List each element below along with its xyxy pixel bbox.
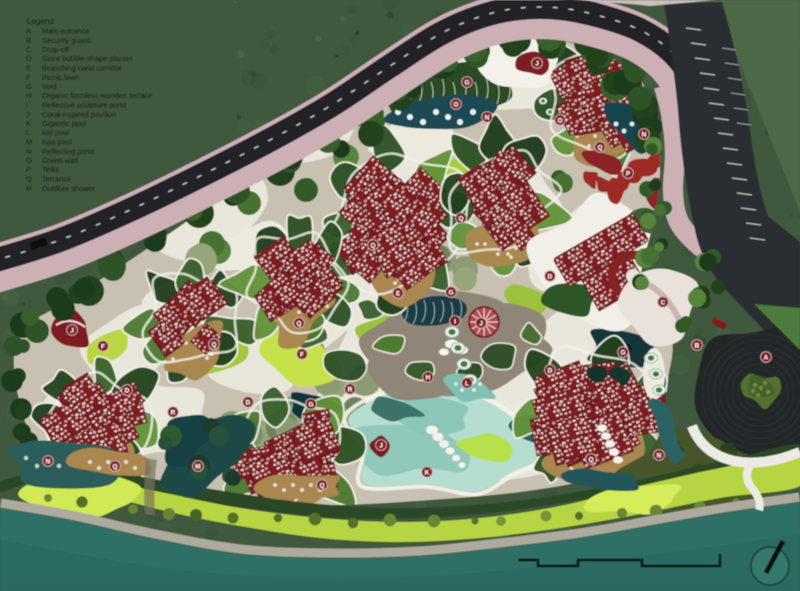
svg-text:N: N (485, 114, 490, 121)
svg-text:G: G (26, 82, 32, 91)
svg-text:K: K (26, 119, 31, 128)
svg-text:Security guard: Security guard (42, 36, 90, 45)
svg-text:E: E (396, 290, 401, 297)
svg-text:I: I (26, 101, 28, 110)
svg-text:N: N (642, 131, 647, 138)
svg-text:D: D (246, 399, 251, 406)
svg-text:J: J (479, 320, 483, 327)
svg-text:O: O (557, 117, 562, 124)
svg-text:Q: Q (112, 463, 117, 470)
svg-text:F: F (26, 73, 31, 82)
svg-text:O: O (26, 156, 32, 165)
svg-text:J: J (70, 327, 74, 334)
svg-text:F: F (300, 351, 304, 358)
svg-text:Outdoor shower: Outdoor shower (42, 184, 96, 193)
svg-text:Q: Q (26, 175, 32, 184)
svg-text:Kid pool: Kid pool (42, 128, 69, 137)
svg-text:Q: Q (370, 242, 375, 249)
svg-text:Tellis: Tellis (42, 165, 59, 174)
svg-text:B: B (26, 36, 31, 45)
svg-text:Organic formless wooden terrac: Organic formless wooden terrace (42, 91, 152, 100)
svg-text:P: P (626, 170, 631, 177)
svg-text:Main entrance: Main entrance (42, 27, 90, 36)
svg-text:Picnic lawn: Picnic lawn (42, 73, 80, 82)
svg-text:Terrance: Terrance (42, 175, 71, 184)
svg-text:F: F (101, 343, 105, 350)
svg-text:R: R (348, 386, 353, 393)
svg-text:Drop-off: Drop-off (42, 45, 70, 54)
svg-text:B: B (695, 342, 700, 349)
svg-text:J: J (535, 60, 539, 67)
svg-text:D: D (26, 54, 32, 63)
svg-text:C: C (26, 45, 32, 54)
svg-text:M: M (26, 138, 32, 147)
svg-text:Green wall: Green wall (42, 156, 78, 165)
svg-text:Giant bubble-shape planter: Giant bubble-shape planter (42, 54, 133, 63)
svg-text:Q: Q (588, 456, 593, 463)
svg-text:Coral-inspired pavilion: Coral-inspired pavilion (42, 110, 116, 119)
svg-text:Reflecting pond: Reflecting pond (42, 147, 94, 156)
svg-text:K: K (425, 469, 430, 476)
svg-text:Void: Void (42, 82, 57, 91)
svg-text:L: L (26, 128, 30, 137)
svg-text:N: N (26, 147, 31, 156)
svg-text:O: O (453, 101, 458, 108)
svg-text:Spa pool: Spa pool (42, 138, 72, 147)
svg-text:H: H (26, 91, 31, 100)
svg-text:L: L (465, 380, 469, 387)
svg-text:A: A (26, 27, 31, 36)
svg-text:Branching coral corridor: Branching coral corridor (42, 64, 122, 73)
svg-text:Q: Q (296, 320, 301, 327)
svg-text:I: I (454, 318, 456, 325)
svg-text:A: A (764, 354, 769, 361)
svg-text:P: P (26, 165, 31, 174)
svg-text:E: E (26, 64, 31, 73)
svg-text:G: G (464, 79, 469, 86)
svg-text:D: D (548, 273, 553, 280)
svg-text:D: D (548, 367, 553, 374)
svg-text:Q: Q (211, 341, 216, 348)
svg-text:R: R (26, 184, 32, 193)
svg-text:R: R (171, 409, 176, 416)
svg-text:D: D (125, 387, 130, 394)
svg-text:C: C (661, 299, 666, 306)
svg-text:G: G (308, 401, 313, 408)
svg-text:Reflective sculpture pond: Reflective sculpture pond (42, 101, 126, 110)
svg-text:M: M (195, 463, 200, 470)
svg-text:G: G (620, 349, 625, 356)
svg-text:N: N (657, 452, 662, 459)
svg-text:J: J (26, 110, 30, 119)
svg-text:Q: Q (458, 215, 463, 222)
svg-text:G: G (448, 289, 453, 296)
svg-text:Legend: Legend (27, 17, 54, 26)
svg-text:Q: Q (319, 482, 324, 489)
svg-text:J: J (379, 442, 383, 449)
svg-text:N: N (46, 458, 51, 465)
svg-text:H: H (426, 374, 431, 381)
svg-text:Q: Q (597, 144, 602, 151)
svg-text:Gigantic pool: Gigantic pool (42, 119, 86, 128)
